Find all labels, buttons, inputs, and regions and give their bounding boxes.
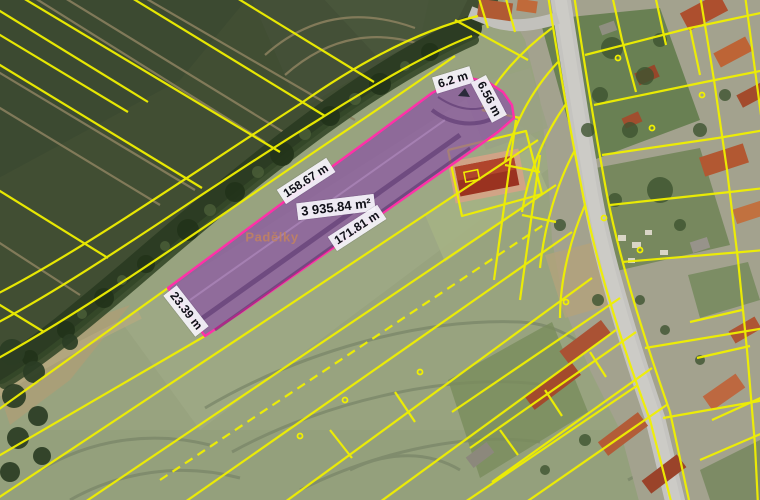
place-name-label: Padělky xyxy=(245,230,298,245)
aerial-map[interactable] xyxy=(0,0,760,500)
map-viewport[interactable]: 6.2 m 6.56 m 158.67 m 3 935.84 m² 171.81… xyxy=(0,0,760,500)
